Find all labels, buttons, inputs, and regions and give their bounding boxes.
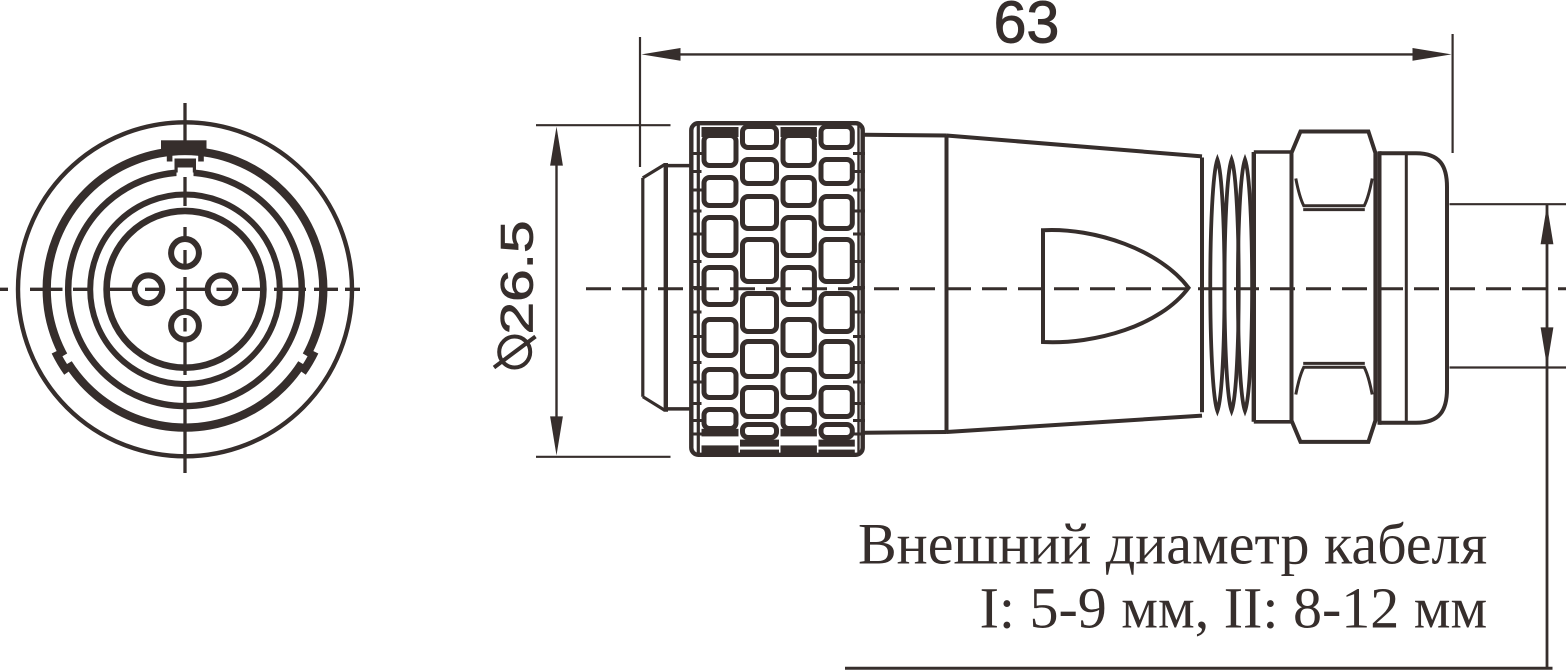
svg-text:Внешний диаметр кабеля: Внешний диаметр кабеля [858,512,1487,577]
svg-text:26.5: 26.5 [492,220,543,334]
svg-text:I: 5-9 мм, II: 8-12 мм: I: 5-9 мм, II: 8-12 мм [980,576,1488,641]
svg-text:63: 63 [994,0,1060,56]
